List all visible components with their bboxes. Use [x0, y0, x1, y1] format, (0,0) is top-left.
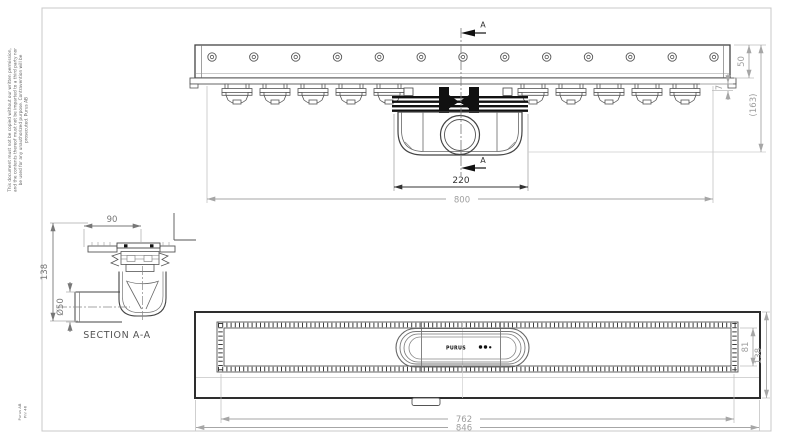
- technical-drawing-canvas: This document must not be copied without…: [0, 0, 800, 438]
- dimension-label-90: 90: [107, 215, 118, 225]
- section-caption: SECTION A-A: [83, 330, 150, 341]
- corner-note: Purus AB Pnr 46: [17, 403, 28, 420]
- dimension-label-846: 846: [456, 424, 472, 434]
- corner-note-line-1: Purus AB: [17, 403, 22, 420]
- corner-note-line-2: Pnr 46: [23, 405, 28, 418]
- plan-bottom-tab: [412, 398, 440, 406]
- copyright-line-2: and the contents thereof must not be imp…: [13, 48, 19, 192]
- dimension-label-7: 7: [715, 85, 725, 90]
- copyright-line-4: prosecuted. Purus AB: [24, 97, 30, 143]
- brand-label: PURUS: [446, 346, 466, 352]
- dimension-label-pipe-diameter: Ø50: [55, 298, 66, 316]
- dimension-label-163: (163): [749, 94, 759, 117]
- copyright-line-1: This document must not be copied without…: [7, 48, 13, 193]
- copyright-note: This document must not be copied without…: [7, 48, 30, 193]
- dimension-label-50: 50: [737, 56, 747, 67]
- dimension-label-220: 220: [452, 176, 469, 186]
- dimension-label-138-plan: 138: [754, 348, 764, 364]
- section-marker-bottom-label: A: [480, 156, 486, 165]
- dimension-label-81: 81: [741, 342, 751, 353]
- dimension-label-138-section: 138: [40, 264, 50, 280]
- plan-hatched-border: [217, 322, 738, 372]
- flange-strip: [190, 78, 736, 84]
- copyright-line-3: be used for any unauthorized purpose. Co…: [18, 54, 24, 185]
- section-marker-top-label: A: [480, 21, 486, 30]
- dimension-label-800: 800: [454, 196, 470, 206]
